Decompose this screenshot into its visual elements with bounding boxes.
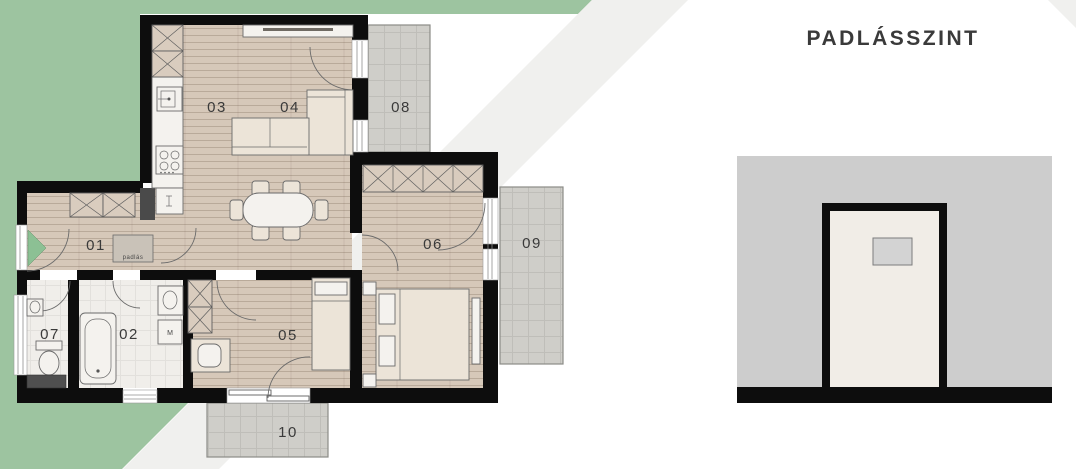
attic-plan-title: PADLÁSSZINT — [807, 27, 980, 50]
terrace-08 — [368, 25, 430, 152]
window-terrace09-door — [483, 198, 498, 280]
floorplan-page: padlás M — [0, 0, 1076, 469]
kitchen-fixtures — [152, 25, 183, 214]
bathtub-icon — [80, 313, 116, 384]
room-label-08: 08 — [391, 99, 411, 116]
desk-chair-icon — [198, 344, 221, 367]
attic-hatch-opening — [873, 238, 912, 265]
kitchen-base-cabinet — [156, 188, 183, 214]
corner-band — [1048, 0, 1076, 28]
shaft — [140, 188, 155, 220]
nightstand-bottom — [363, 374, 376, 387]
wc-mat — [27, 375, 66, 388]
attic-plan — [737, 156, 1052, 403]
room-label-02: 02 — [119, 326, 139, 343]
attic-hatch: padlás — [113, 235, 153, 262]
room-label-09: 09 — [522, 235, 542, 252]
bed-bench — [472, 298, 480, 364]
window-terrace08-door — [352, 40, 368, 78]
room-label-04: 04 — [280, 99, 300, 116]
room-label-10: 10 — [278, 424, 298, 441]
wc-basin-icon — [27, 299, 43, 316]
room-label-01: 01 — [86, 237, 106, 254]
room-label-07: 07 — [40, 326, 60, 343]
window-wc-left — [14, 295, 27, 375]
terrace-10 — [207, 403, 328, 457]
window-entrance-door — [16, 225, 27, 270]
attic-hatch-label: padlás — [123, 255, 144, 261]
kitchen-sink-icon — [157, 87, 182, 111]
terrace-09 — [500, 187, 563, 364]
attic-base-wall — [737, 387, 1052, 403]
washing-machine-label: M — [167, 330, 173, 337]
washbasin-icon — [158, 286, 183, 315]
room-label-05: 05 — [278, 327, 298, 344]
room-label-03: 03 — [207, 99, 227, 116]
floorplan-canvas: padlás M — [0, 0, 1076, 469]
window-bath-bottom — [123, 390, 157, 403]
room-label-06: 06 — [423, 236, 443, 253]
attic-room-floor — [830, 211, 939, 387]
stove-icon — [156, 146, 183, 174]
nightstand-top — [363, 282, 376, 295]
window-living-right — [352, 120, 368, 152]
single-bed-icon — [312, 278, 350, 370]
washing-machine-icon: M — [158, 320, 182, 344]
double-bed-icon — [376, 289, 469, 380]
tv-sideboard — [243, 25, 353, 37]
